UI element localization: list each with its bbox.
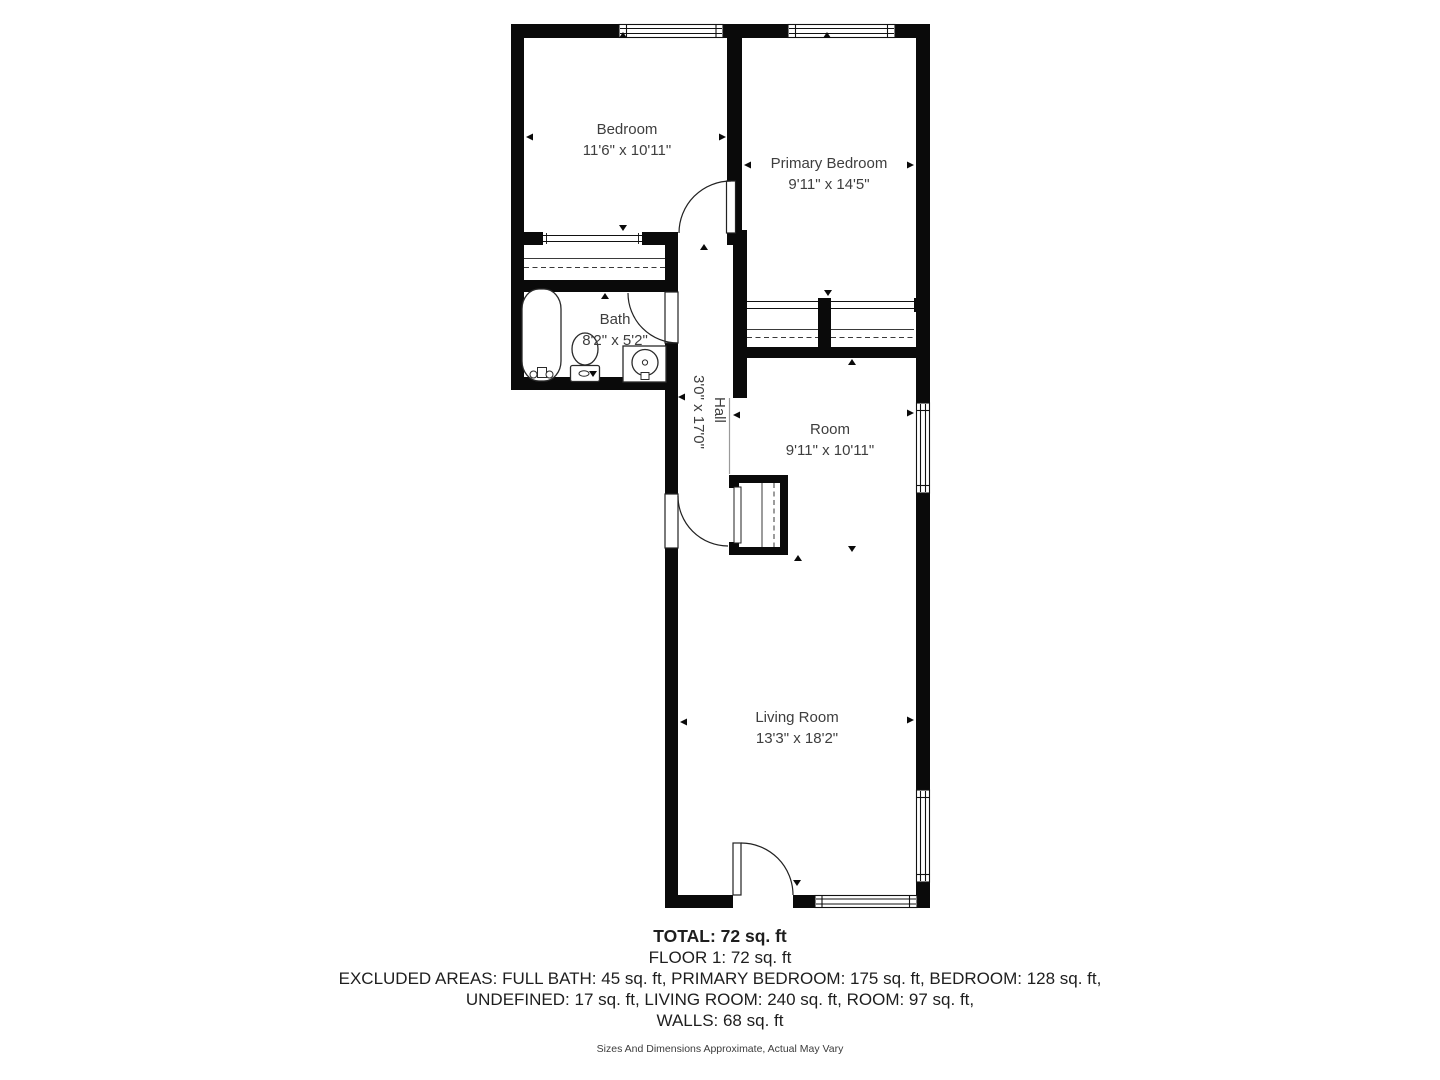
dimension-arrow [907,410,914,417]
summary-floor: FLOOR 1: 72 sq. ft [0,947,1440,968]
summary-excluded-line1: EXCLUDED AREAS: FULL BATH: 45 sq. ft, PR… [0,968,1440,989]
room-dimensions: 9'11" x 10'11" [786,442,874,459]
dimension-arrow [794,555,802,561]
summary-walls: WALLS: 68 sq. ft [0,1010,1440,1031]
dimension-arrow [601,293,609,299]
bath-dimensions: 8'2" x 5'2" [582,332,648,349]
disclaimer: Sizes And Dimensions Approximate, Actual… [0,1043,1440,1055]
door-hall-side-entry [665,494,728,548]
hall-label-group: Hall 3'0" x 17'0" [690,375,728,449]
room-label: Room [810,421,850,438]
dimension-arrow [907,717,914,724]
door-hall-closet [734,487,741,543]
wall-bedroom-bottom-a [511,232,543,245]
dimension-arrow [526,134,533,141]
door-bedroom [679,181,736,233]
dimension-arrow [680,719,687,726]
living-room-dimensions: 13'3" x 18'2" [756,730,838,747]
wall-closet-mid-stub [818,298,831,347]
dimension-arrow [824,290,832,296]
bedroom-label: Bedroom [597,121,658,138]
wall-bottom-b [793,895,817,908]
floor-plan-page: Bedroom 11'6" x 10'11" Primary Bedroom 9… [0,0,1440,1080]
window-primary-top [788,25,895,38]
bedroom-dimensions: 11'6" x 10'11" [583,142,671,159]
wall-hall-left-a [665,232,678,292]
wall-hall-closet-right [780,475,788,555]
living-room-label: Living Room [755,709,838,726]
wall-hall-closet-stub-top [729,475,739,488]
wall-hall-right [733,230,747,398]
primary-bedroom-dimensions: 9'11" x 14'5" [788,176,869,193]
dimension-arrow [700,244,708,250]
sink [623,346,666,382]
primary-closet-slider-left [747,302,818,309]
wall-hall-left-b [665,343,678,494]
hall-dimensions: 3'0" x 17'0" [690,375,707,449]
floor-plan: Bedroom 11'6" x 10'11" Primary Bedroom 9… [0,0,1440,1080]
dimension-arrow [719,134,726,141]
bedroom-closet-slider [543,233,642,245]
window-living-bottom [815,896,917,908]
wall-bottom-a [665,895,733,908]
primary-bedroom-label: Primary Bedroom [771,155,888,172]
hall-label: Hall [711,397,728,423]
bathtub [522,289,561,381]
dimension-arrow [848,546,856,552]
wall-hall-closet-stub-bottom [729,542,739,555]
summary-excluded-line2: UNDEFINED: 17 sq. ft, LIVING ROOM: 240 s… [0,989,1440,1010]
dimension-arrow [619,225,627,231]
dimension-arrow [678,394,685,401]
wall-hall-left-c [665,548,678,908]
window-bedroom-top [619,25,723,38]
bath-label: Bath [600,311,631,328]
area-summary: TOTAL: 72 sq. ft FLOOR 1: 72 sq. ft EXCL… [0,926,1440,1031]
dimension-arrow [744,162,751,169]
window-room-right [917,403,930,493]
dimension-arrow [907,162,914,169]
primary-closet-slider-right [831,302,914,309]
dimension-arrow [733,412,740,419]
window-living-right [917,790,930,882]
dimension-arrow [793,880,801,886]
door-main-entry [733,843,793,895]
wall-room-top [733,347,930,358]
summary-total: TOTAL: 72 sq. ft [0,926,1440,947]
dimension-arrow [848,359,856,365]
